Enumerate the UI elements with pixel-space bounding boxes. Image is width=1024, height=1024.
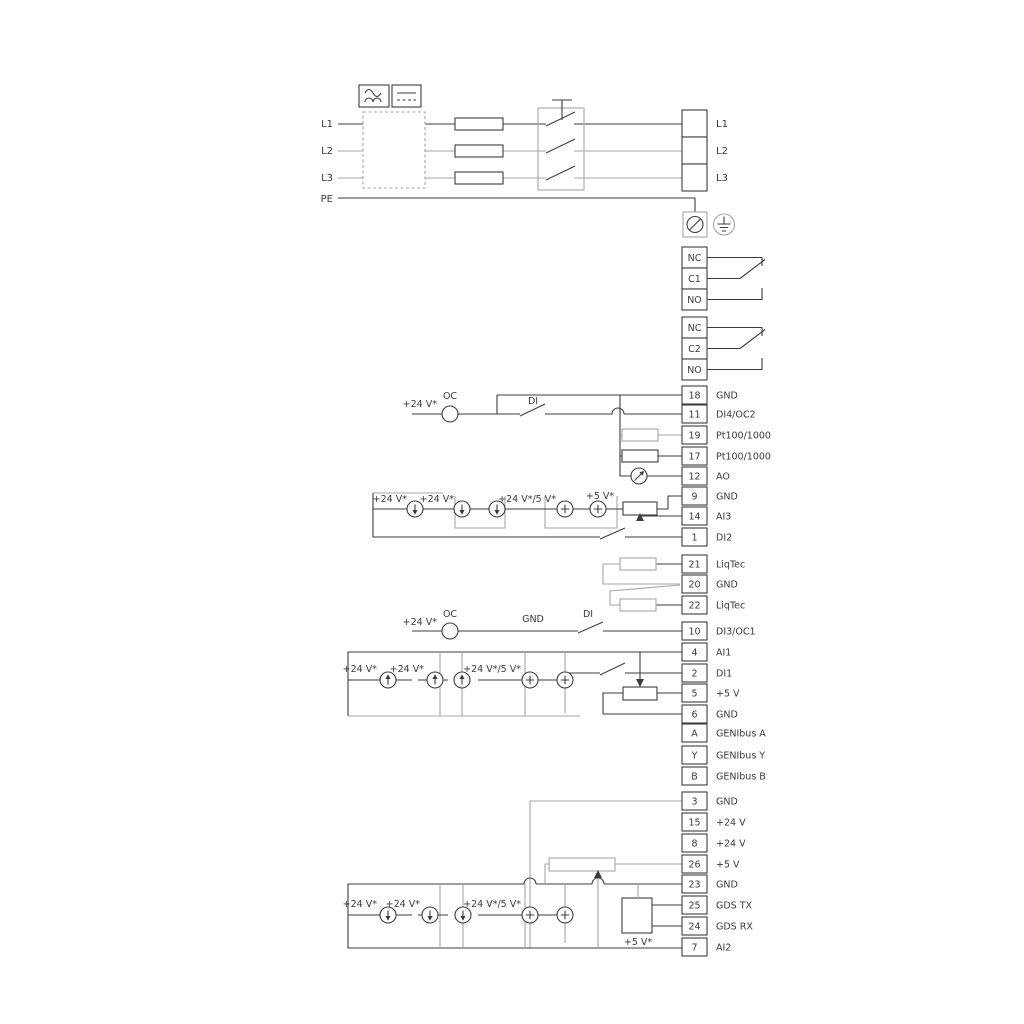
terminal-label: LiqTec	[716, 601, 745, 612]
annotation-oc: OC	[443, 391, 457, 402]
open-collector-icon	[442, 623, 458, 639]
pt1000-sensor-icon	[622, 450, 658, 462]
terminal-label: NO	[687, 365, 702, 376]
terminal-number: 17	[688, 452, 700, 463]
annotation-di: DI	[583, 609, 593, 620]
terminal-number: 9	[691, 492, 697, 503]
terminal-label: C2	[688, 344, 701, 355]
terminal-number: 6	[691, 710, 697, 721]
terminal-label: C1	[688, 274, 701, 285]
io1-wiring	[373, 395, 682, 539]
annotation-24v: +24 V*	[343, 899, 378, 910]
terminal-label: GND	[716, 710, 738, 721]
terminal-number: 14	[688, 512, 700, 523]
terminal-cell	[682, 137, 707, 164]
voltage-source-icon	[522, 907, 538, 923]
terminal-label: GDS TX	[716, 901, 753, 912]
terminal-label: GND	[716, 580, 738, 591]
annotation-24v: +24 V*	[420, 494, 455, 505]
analog-output-meter-icon	[631, 468, 647, 484]
terminal-number: 21	[688, 560, 700, 571]
liqtec-sensor-icon	[620, 599, 656, 611]
terminal-number: 19	[688, 431, 700, 442]
terminal-number: 5	[691, 689, 697, 700]
liqtec-wiring	[603, 558, 682, 611]
dc-symbol-icon	[392, 85, 421, 107]
terminal-number: 20	[688, 580, 700, 591]
terminal-label: GENIbus B	[716, 772, 766, 783]
terminal-label: L1	[716, 119, 728, 130]
terminal-number: 26	[688, 860, 700, 871]
open-collector-icon	[442, 406, 458, 422]
voltage-source-icon	[557, 907, 573, 923]
annotation-5v: +5 V*	[586, 491, 615, 502]
phase-label-l1: L1	[321, 119, 333, 130]
terminal-label: DI2	[716, 533, 732, 544]
main-switch	[538, 100, 584, 190]
terminal-number: 10	[688, 627, 700, 638]
terminal-label: L3	[716, 173, 728, 184]
terminal-label: Pt100/1000	[716, 431, 771, 442]
terminal-label: GND	[716, 797, 738, 808]
terminal-label: NC	[688, 323, 702, 334]
terminal-number: 2	[691, 669, 697, 680]
terminal-label: GENIbus A	[716, 729, 766, 740]
annotation-24v: +24 V*	[403, 617, 438, 628]
supply-wiring	[348, 801, 682, 948]
terminal-label: GND	[716, 391, 738, 402]
current-source-down-icon	[422, 907, 438, 923]
terminal-number: 1	[691, 533, 697, 544]
relay-wiring	[707, 258, 765, 370]
annotation-gnd: GND	[522, 614, 544, 625]
pot-wiper-arrow-icon	[636, 679, 644, 687]
voltage-source-icon	[522, 672, 538, 688]
terminal-number: 7	[691, 943, 697, 954]
terminal-label: AI1	[716, 648, 731, 659]
annotation-24v-5v: +24 V*/5 V*	[498, 494, 556, 505]
pe-screw-terminal-icon	[683, 212, 707, 237]
annotation-5v: +5 V*	[624, 937, 653, 948]
terminal-label: GND	[716, 492, 738, 503]
terminal-label: +5 V	[716, 860, 740, 871]
annotation-24v: +24 V*	[373, 494, 408, 505]
terminal-label: AO	[716, 472, 730, 483]
liqtec-sensor-icon	[620, 558, 656, 570]
terminal-label: +5 V	[716, 689, 740, 700]
voltage-source-icon	[557, 501, 573, 517]
wiring-diagram-page: L1 L2 L3 PE	[0, 0, 1024, 1024]
terminal-label: AI3	[716, 512, 731, 523]
terminal-number: 24	[688, 922, 700, 933]
pt100-sensor-icon	[622, 429, 658, 441]
terminal-number: 18	[688, 391, 700, 402]
terminal-number: Y	[691, 751, 698, 762]
terminal-label: GENIbus Y	[716, 751, 765, 762]
terminal-label: LiqTec	[716, 560, 745, 571]
terminal-label: NO	[687, 295, 702, 306]
terminal-label: AI2	[716, 943, 731, 954]
filter-dashed-box	[363, 112, 425, 188]
annotation-24v: +24 V*	[390, 664, 425, 675]
current-source-down-icon	[454, 501, 470, 517]
annotation-oc: OC	[443, 609, 457, 620]
phase-label-l2: L2	[321, 146, 333, 157]
terminal-label: +24 V	[716, 818, 746, 829]
terminal-label: L2	[716, 146, 728, 157]
annotation-24v-5v: +24 V*/5 V*	[463, 899, 521, 910]
phase-label-l3: L3	[321, 173, 333, 184]
wiring-diagram: L1 L2 L3 PE	[0, 0, 1024, 1024]
terminal-label: DI1	[716, 669, 732, 680]
annotation-24v: +24 V*	[403, 399, 438, 410]
terminal-label: GDS RX	[716, 922, 753, 933]
terminal-number: 8	[691, 839, 697, 850]
earth-ground-icon	[714, 214, 735, 235]
terminal-number: A	[691, 729, 698, 740]
voltage-source-icon	[590, 501, 606, 517]
terminal-label: +24 V	[716, 839, 746, 850]
gds-sensor-box	[622, 898, 652, 933]
ac-symbol-icon	[359, 85, 389, 107]
current-source-up-icon	[427, 672, 443, 688]
terminal-number: 15	[688, 818, 700, 829]
annotation-24v: +24 V*	[343, 664, 378, 675]
terminal-label: DI4/OC2	[716, 410, 756, 421]
terminal-label: NC	[688, 253, 702, 264]
terminal-cell	[682, 164, 707, 191]
terminal-number: 11	[688, 410, 700, 421]
terminal-cell	[682, 110, 707, 137]
fuse-icons	[455, 118, 503, 184]
phase-wiring	[338, 112, 695, 212]
potentiometer-icon	[549, 858, 615, 871]
terminal-number: 22	[688, 601, 700, 612]
terminal-number: 25	[688, 901, 700, 912]
annotation-24v: +24 V*	[386, 899, 421, 910]
terminal-label: DI3/OC1	[716, 627, 756, 638]
voltage-source-icon	[557, 672, 573, 688]
phase-label-pe: PE	[321, 194, 333, 205]
terminal-label: GND	[716, 880, 738, 891]
annotation-24v-5v: +24 V*/5 V*	[463, 664, 521, 675]
terminal-number: 12	[688, 472, 700, 483]
power-section: L1 L2 L3 PE	[321, 85, 735, 237]
terminal-number: 4	[691, 648, 697, 659]
terminal-number: B	[691, 772, 698, 783]
terminal-number: 3	[691, 797, 697, 808]
terminal-label: Pt100/1000	[716, 452, 771, 463]
terminal-number: 23	[688, 880, 700, 891]
annotation-di: DI	[528, 396, 538, 407]
potentiometer-icon	[623, 687, 657, 700]
